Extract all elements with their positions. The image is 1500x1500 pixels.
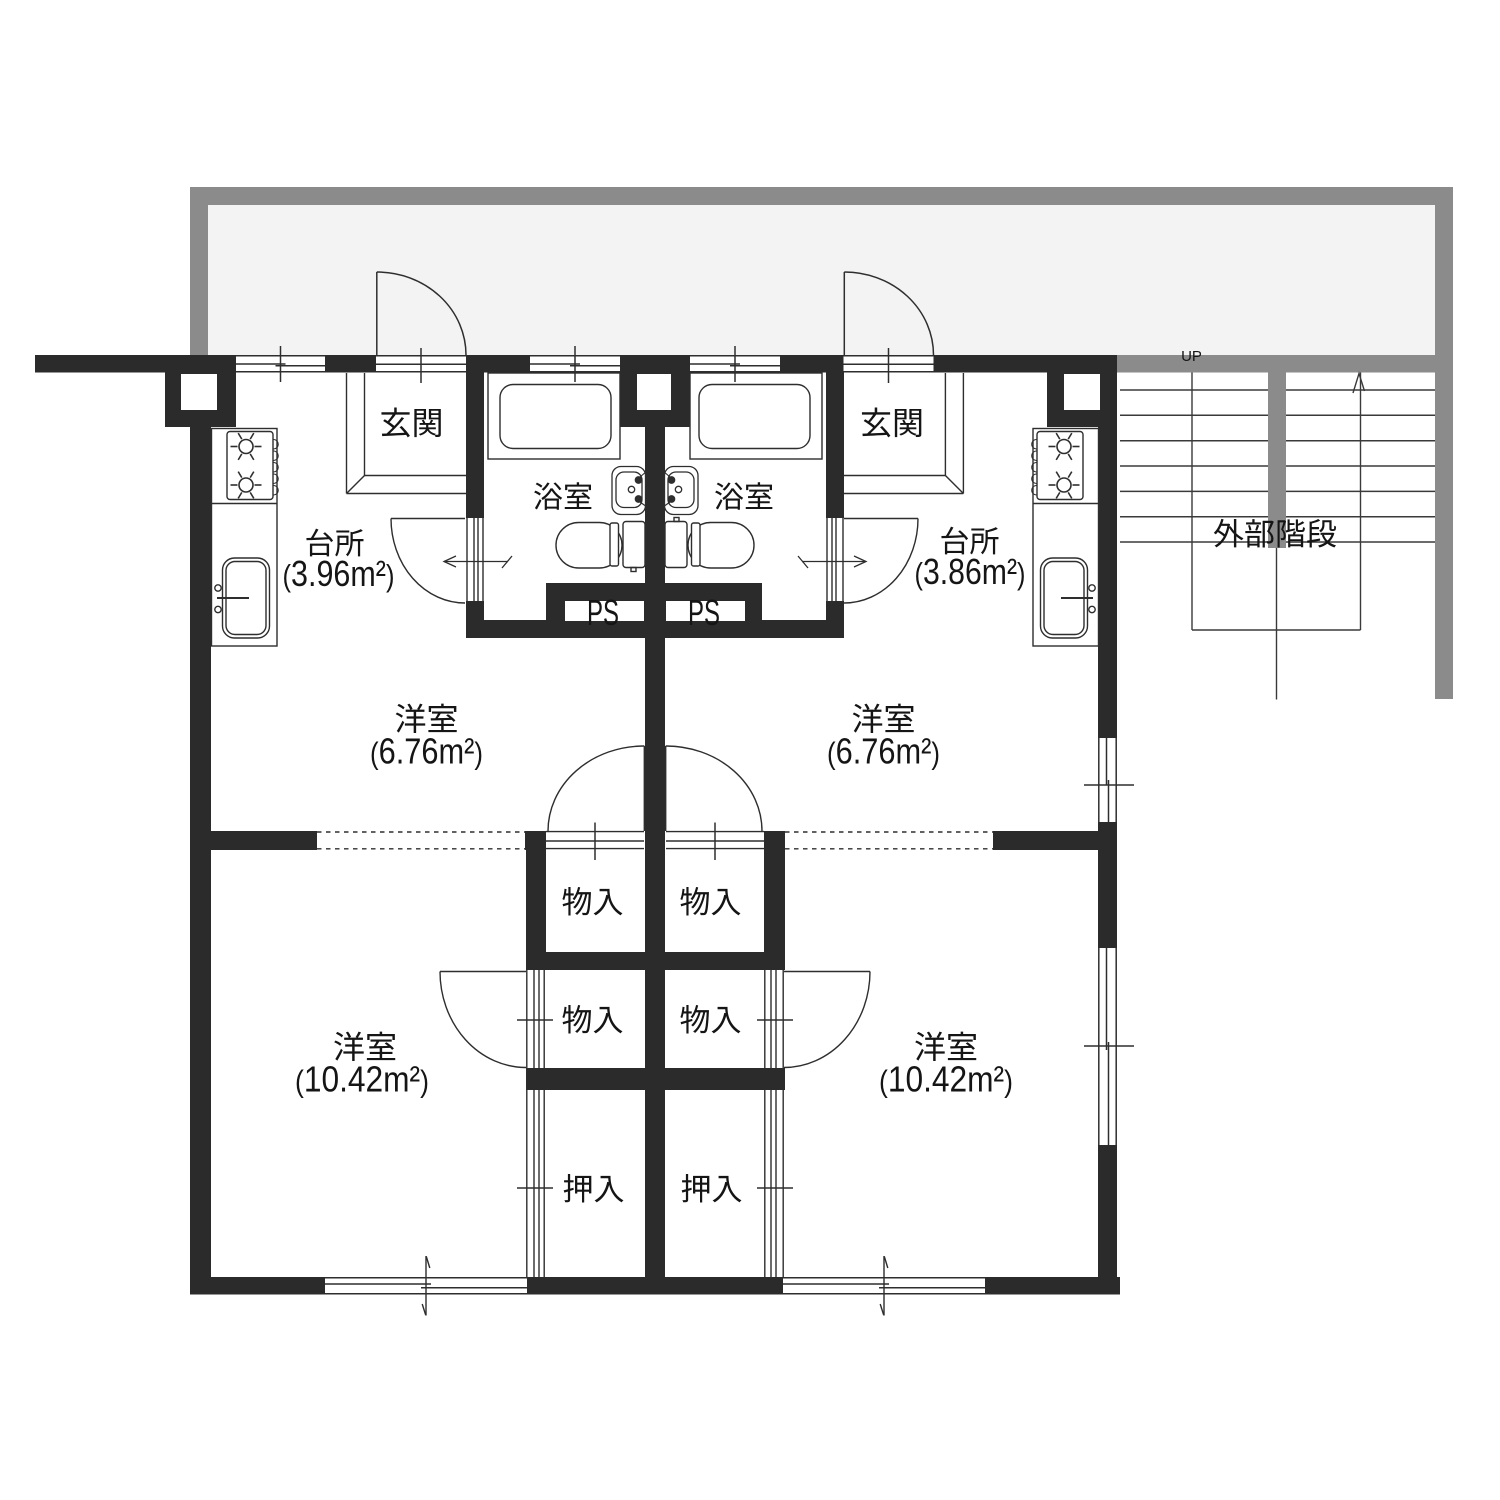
svg-text:(3.86m²): (3.86m²) bbox=[915, 551, 1026, 592]
svg-text:(10.42m²): (10.42m²) bbox=[295, 1059, 429, 1100]
svg-text:PS: PS bbox=[688, 592, 720, 633]
svg-text:(10.42m²): (10.42m²) bbox=[879, 1059, 1013, 1100]
svg-text:UP: UP bbox=[1181, 348, 1202, 365]
svg-text:(6.76m²): (6.76m²) bbox=[827, 731, 940, 772]
svg-text:(6.76m²): (6.76m²) bbox=[370, 731, 483, 772]
svg-text:(3.96m²): (3.96m²) bbox=[283, 553, 395, 594]
svg-text:PS: PS bbox=[587, 592, 619, 633]
